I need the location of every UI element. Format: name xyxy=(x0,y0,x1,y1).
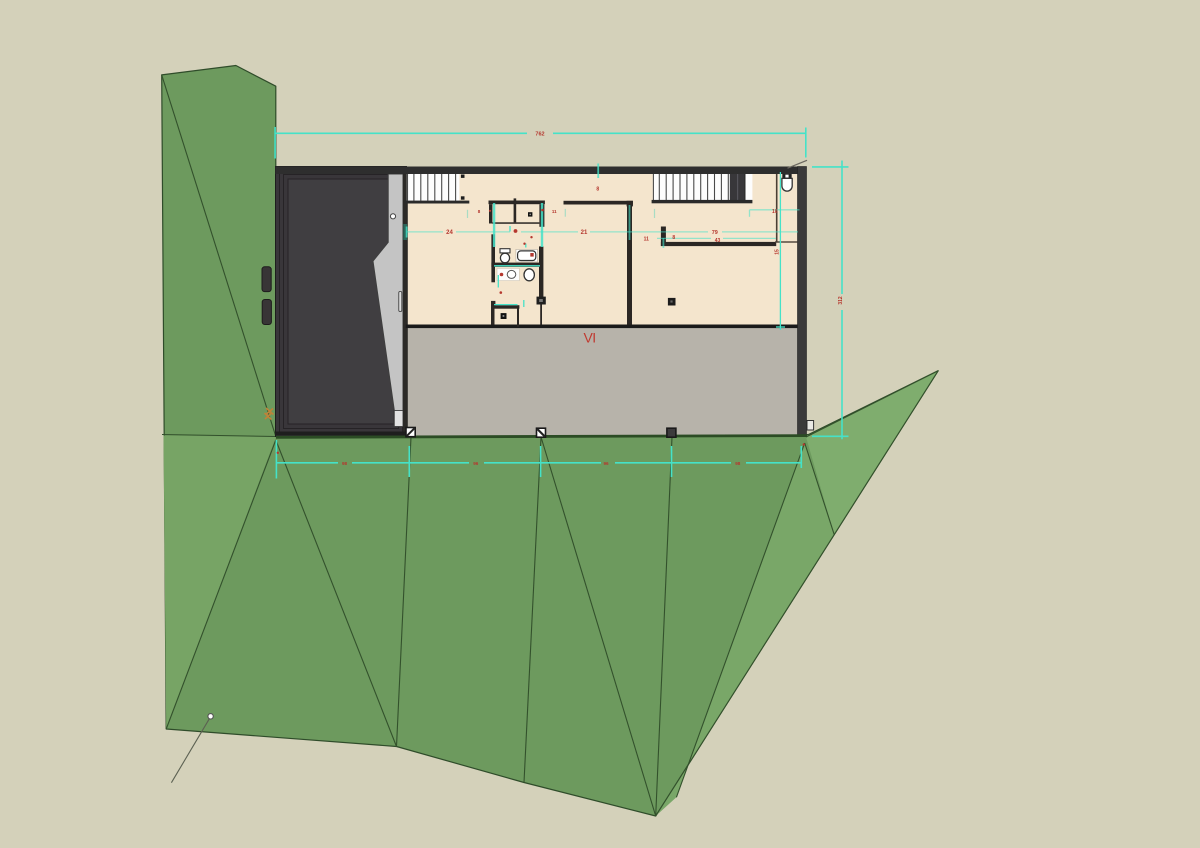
svg-text:79: 79 xyxy=(712,230,718,236)
svg-text:11: 11 xyxy=(552,209,557,214)
svg-text:8: 8 xyxy=(672,235,675,241)
svg-text:8: 8 xyxy=(596,187,599,193)
svg-text:15: 15 xyxy=(774,249,780,255)
svg-text:24: 24 xyxy=(446,230,453,236)
svg-text:VI: VI xyxy=(583,330,595,346)
svg-text:762: 762 xyxy=(535,132,544,138)
svg-text:312: 312 xyxy=(838,296,844,305)
svg-text:10: 10 xyxy=(772,209,778,215)
svg-text:98: 98 xyxy=(735,461,741,466)
svg-text:96: 96 xyxy=(603,461,609,466)
svg-text:11: 11 xyxy=(644,237,650,243)
svg-text:21: 21 xyxy=(581,230,588,236)
svg-text:98: 98 xyxy=(342,461,348,466)
svg-text:43: 43 xyxy=(715,238,721,244)
svg-text:96: 96 xyxy=(473,461,479,466)
